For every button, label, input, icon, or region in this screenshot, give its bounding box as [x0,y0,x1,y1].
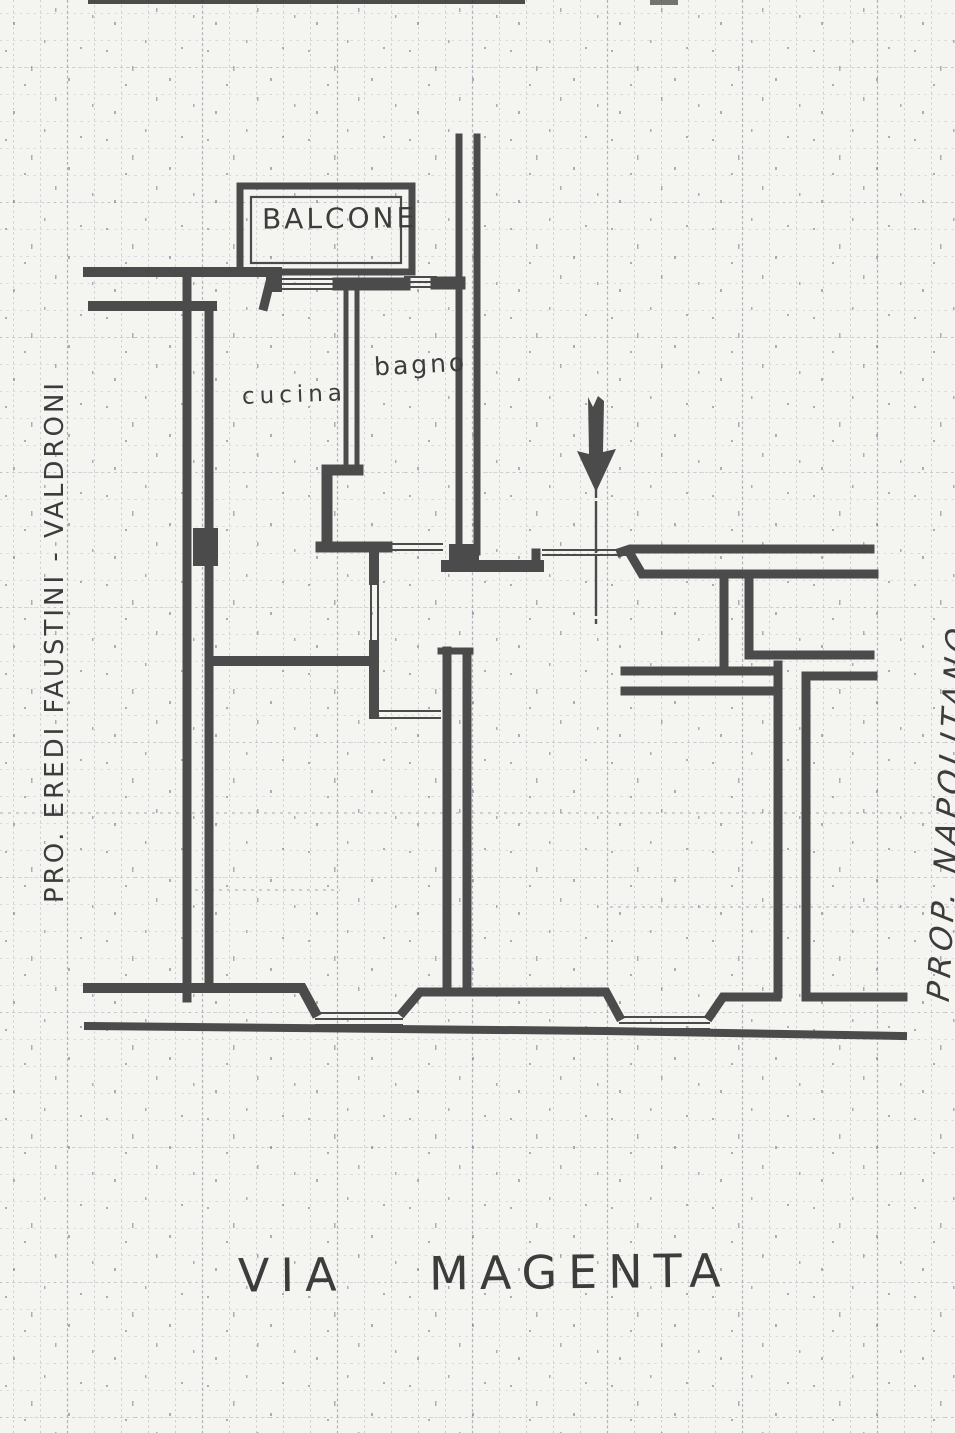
left-property-label: PRO. EREDI FAUSTINI - VALDRONI [42,263,68,903]
balcony-label: BALCONE [262,204,417,233]
street-label: VIA MAGENTA [238,1247,732,1298]
kitchen-label: cucina [242,382,348,409]
scanned-floor-plan-page: BALCONE bagno cucina VIA MAGENTA PRO. ER… [0,0,955,1433]
floor-plan-svg [0,0,955,1433]
bathroom-label: bagno [373,350,467,380]
